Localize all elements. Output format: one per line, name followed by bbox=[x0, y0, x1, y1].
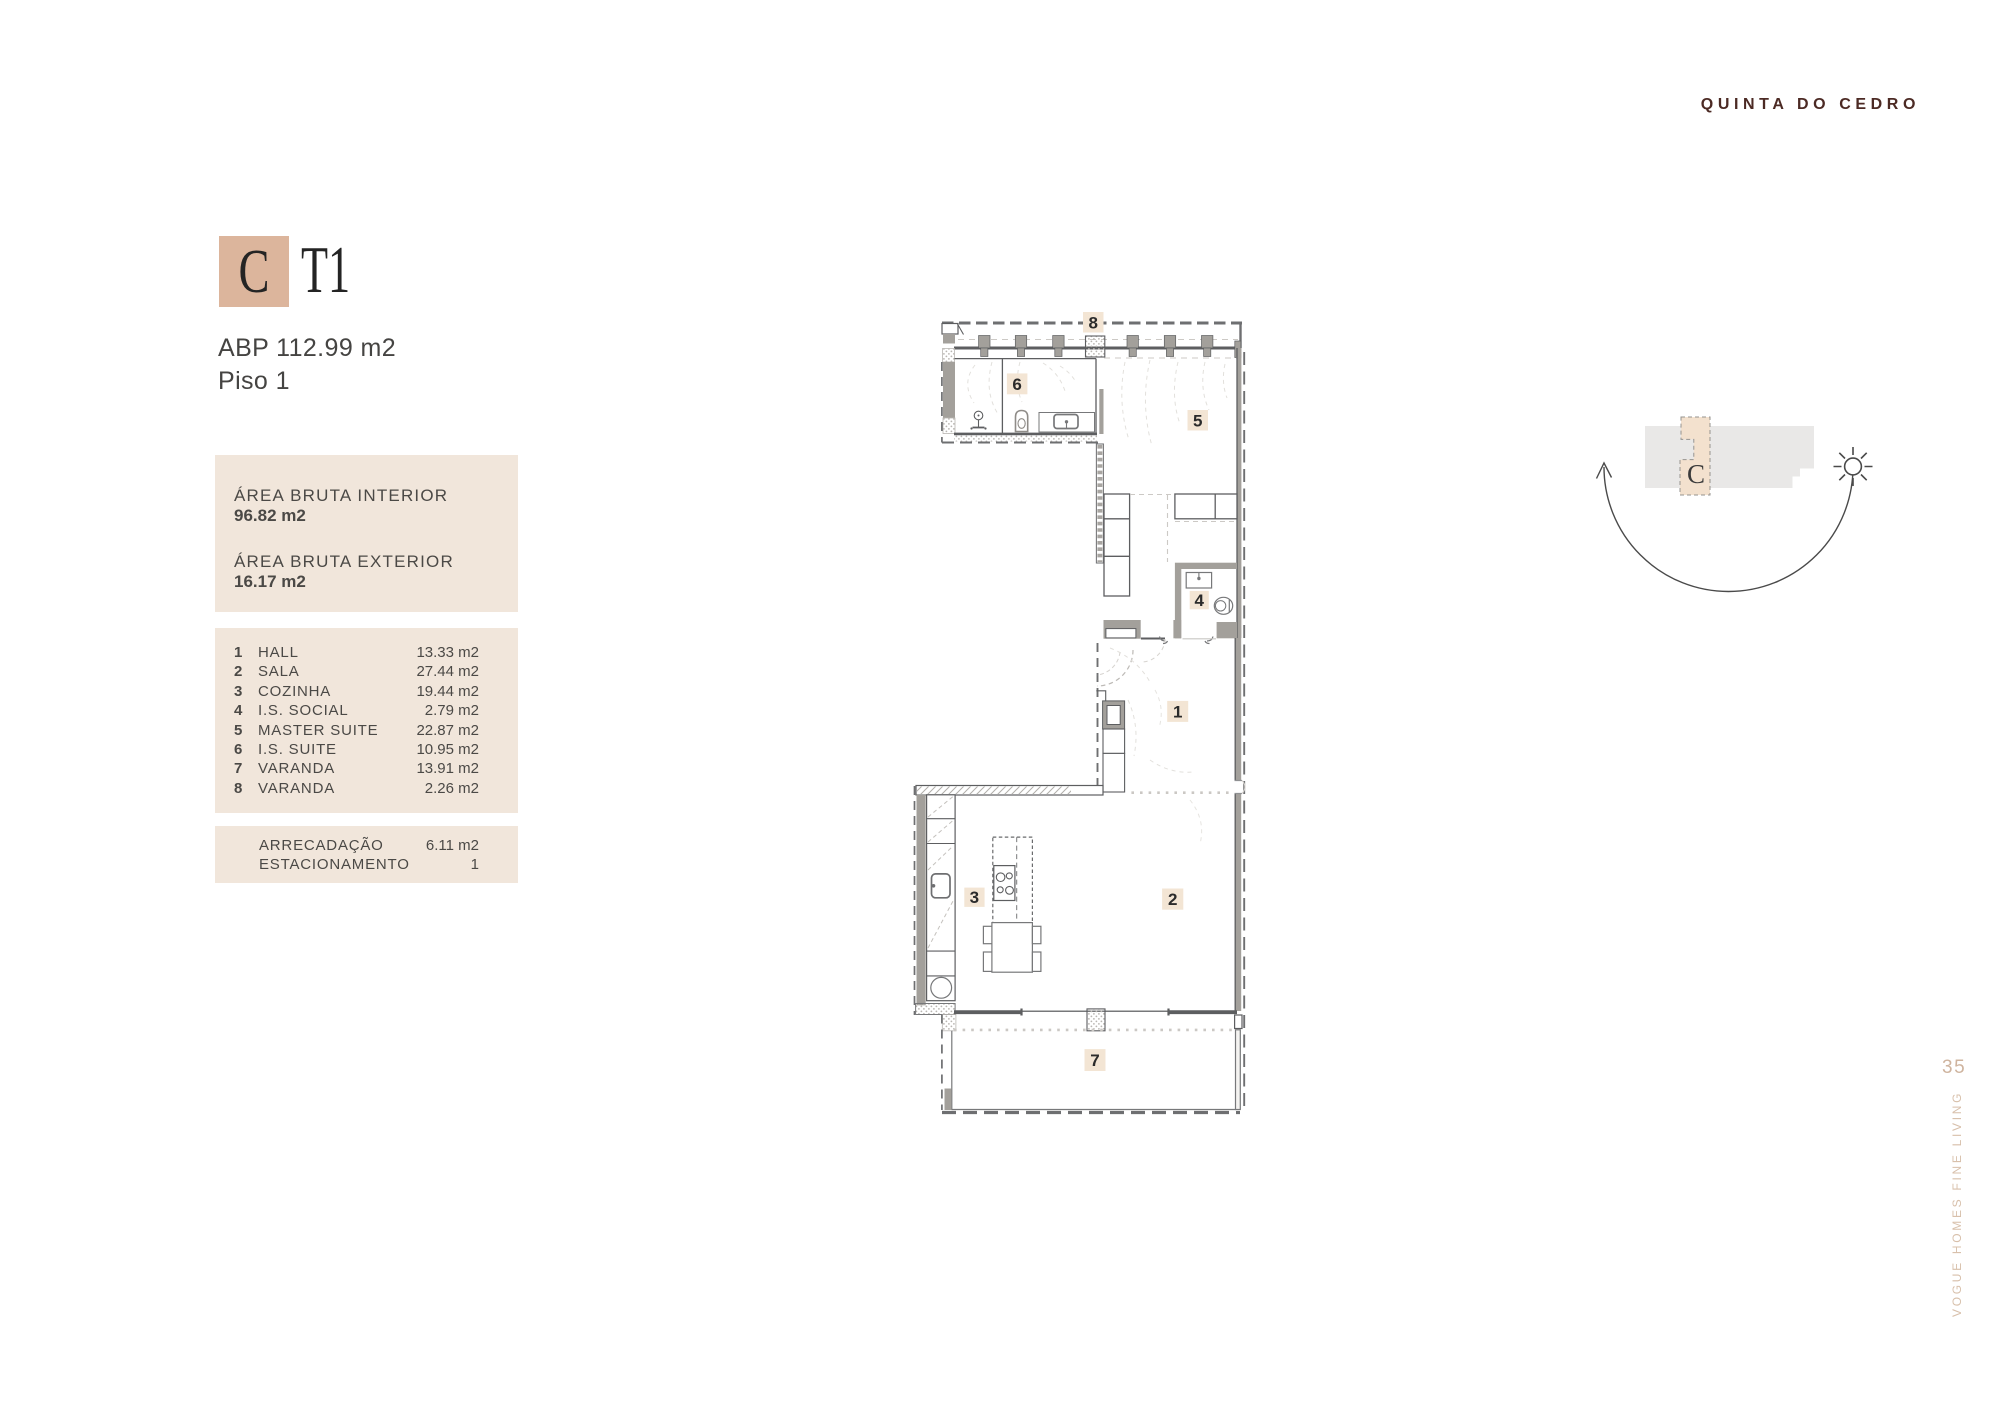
svg-text:3: 3 bbox=[970, 888, 979, 907]
svg-text:8: 8 bbox=[1088, 313, 1097, 332]
svg-text:1: 1 bbox=[1173, 702, 1182, 721]
svg-text:5: 5 bbox=[1193, 411, 1202, 430]
svg-text:4: 4 bbox=[1194, 591, 1204, 610]
svg-text:7: 7 bbox=[1090, 1051, 1099, 1070]
svg-text:6: 6 bbox=[1012, 375, 1021, 394]
svg-text:2: 2 bbox=[1168, 890, 1177, 909]
svg-text:C: C bbox=[1687, 459, 1705, 489]
